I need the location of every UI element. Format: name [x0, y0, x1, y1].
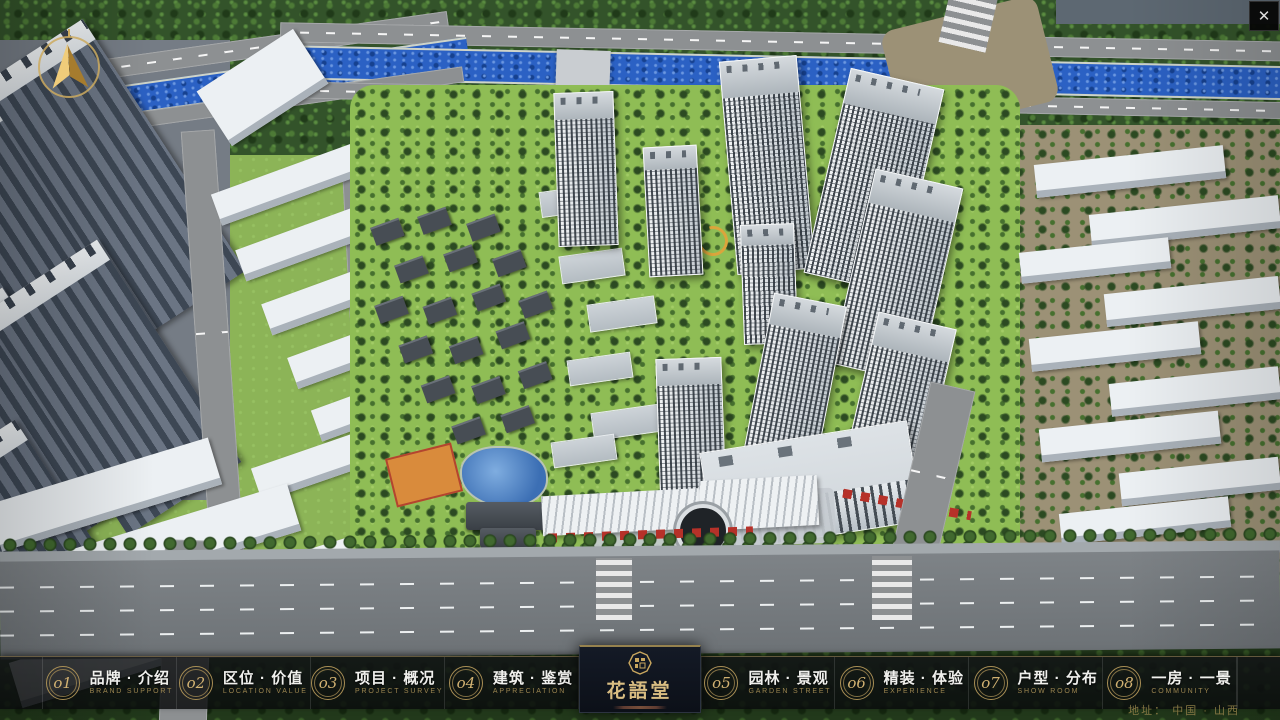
- aerial-map-view[interactable]: [0, 0, 1280, 720]
- menu-number: o4: [457, 674, 476, 692]
- courtyard-house: [370, 218, 405, 246]
- courtyard-house: [449, 336, 484, 364]
- menu-item-location-value[interactable]: o2 区位 · 价值LOCATION VALUE: [177, 657, 311, 709]
- courtyard-house: [398, 335, 433, 363]
- courtyard-house: [466, 214, 501, 242]
- chinese-gate-roof: [466, 502, 546, 530]
- compass-needle-light: [49, 43, 70, 88]
- menu-label-en: BRAND SUPPORT: [90, 688, 174, 695]
- menu-edge-spacer: [0, 657, 43, 709]
- menu-label-zh: 户型 · 分布: [1018, 671, 1098, 686]
- residential-tower: [553, 91, 618, 247]
- menu-number-badge: o4: [449, 666, 483, 700]
- water-north-east: [1056, 0, 1280, 24]
- courtyard-house: [421, 375, 456, 403]
- menu-label-zh: 精装 · 体验: [884, 671, 964, 686]
- menu-label-en: SHOW ROOM: [1018, 688, 1080, 695]
- courtyard-house: [471, 376, 506, 404]
- menu-item-brand-intro[interactable]: o1 品牌 · 介绍BRAND SUPPORT: [43, 657, 177, 709]
- courtyard-house: [518, 291, 553, 319]
- courtyard-house: [496, 321, 531, 349]
- menu-number-badge: o5: [704, 666, 738, 700]
- crosswalk-south-east: [872, 556, 912, 620]
- menu-item-unit-layout[interactable]: o7 户型 · 分布SHOW ROOM: [969, 657, 1103, 709]
- courtyard-house: [443, 244, 478, 272]
- menu-label-zh: 项目 · 概况: [355, 671, 435, 686]
- courtyard-house: [417, 207, 452, 235]
- courtyard-house: [500, 405, 535, 433]
- menu-label-en: EXPERIENCE: [884, 688, 947, 695]
- courtyard-house: [394, 255, 429, 283]
- menu-number: o6: [847, 674, 866, 692]
- crosswalk-south: [596, 558, 632, 620]
- logo-slot: 花語堂: [579, 657, 702, 709]
- app-window: ✕ o1 品牌 · 介绍BRAND SUPPORT o2 区位 · 价值LOCA…: [0, 0, 1280, 720]
- menu-number-badge: o3: [311, 666, 345, 700]
- close-button[interactable]: ✕: [1249, 1, 1279, 31]
- courtyard-house: [471, 284, 506, 312]
- brand-logo-panel[interactable]: 花語堂: [579, 645, 701, 713]
- menu-label-zh: 一房 · 一景: [1151, 671, 1231, 686]
- menu-label-en: LOCATION VALUE: [223, 688, 308, 695]
- menu-number-badge: o7: [974, 666, 1008, 700]
- menu-number-badge: o1: [46, 666, 80, 700]
- menu-label-en: PROJECT SURVEY: [355, 688, 443, 695]
- menu-number: o3: [319, 674, 338, 692]
- lane-marking: [0, 623, 1280, 636]
- residential-tower: [643, 145, 704, 278]
- courtyard-house: [374, 296, 409, 324]
- boulevard-road: [0, 550, 1280, 659]
- brand-caption-line: [613, 706, 667, 709]
- menu-item-garden-landscape[interactable]: o5 园林 · 景观GARDEN STREET: [702, 657, 836, 709]
- menu-label-zh: 品牌 · 介绍: [90, 671, 170, 686]
- menu-label-en: COMMUNITY: [1151, 688, 1210, 695]
- courtyard-house: [492, 249, 527, 277]
- brand-seal-icon: [628, 651, 652, 675]
- menu-number-badge: o2: [179, 666, 213, 700]
- project-address: 地址： 中国 · 山西: [1128, 702, 1240, 718]
- menu-number-badge: o8: [1107, 666, 1141, 700]
- menu-edge-spacer: [1237, 657, 1280, 709]
- menu-number-badge: o6: [840, 666, 874, 700]
- brand-name: 花語堂: [606, 676, 672, 703]
- courtyard-house: [518, 361, 553, 389]
- menu-number: o1: [53, 674, 72, 692]
- compass-icon: [38, 36, 100, 98]
- menu-item-project-survey[interactable]: o3 项目 · 概况PROJECT SURVEY: [311, 657, 445, 709]
- menu-item-architecture[interactable]: o4 建筑 · 鉴赏APPRECIATION: [445, 657, 579, 709]
- menu-label-zh: 区位 · 价值: [223, 671, 303, 686]
- menu-number: o5: [712, 674, 731, 692]
- lane-marking: [0, 599, 1280, 612]
- menu-number: o2: [187, 674, 206, 692]
- compass-needle-dark: [67, 43, 88, 88]
- compass-north-mark: [68, 29, 70, 37]
- bottom-menu-bar: o1 品牌 · 介绍BRAND SUPPORT o2 区位 · 价值LOCATI…: [0, 656, 1280, 709]
- courtyard-house: [423, 297, 458, 325]
- menu-number: o7: [981, 674, 1000, 692]
- lane-marking: [0, 576, 1280, 589]
- menu-number: o8: [1115, 674, 1134, 692]
- menu-item-decoration-experience[interactable]: o6 精装 · 体验EXPERIENCE: [835, 657, 969, 709]
- courtyard-house: [451, 416, 486, 444]
- menu-label-zh: 建筑 · 鉴赏: [493, 671, 573, 686]
- menu-label-en: APPRECIATION: [493, 688, 566, 695]
- menu-label-zh: 园林 · 景观: [748, 671, 828, 686]
- menu-label-en: GARDEN STREET: [748, 688, 831, 695]
